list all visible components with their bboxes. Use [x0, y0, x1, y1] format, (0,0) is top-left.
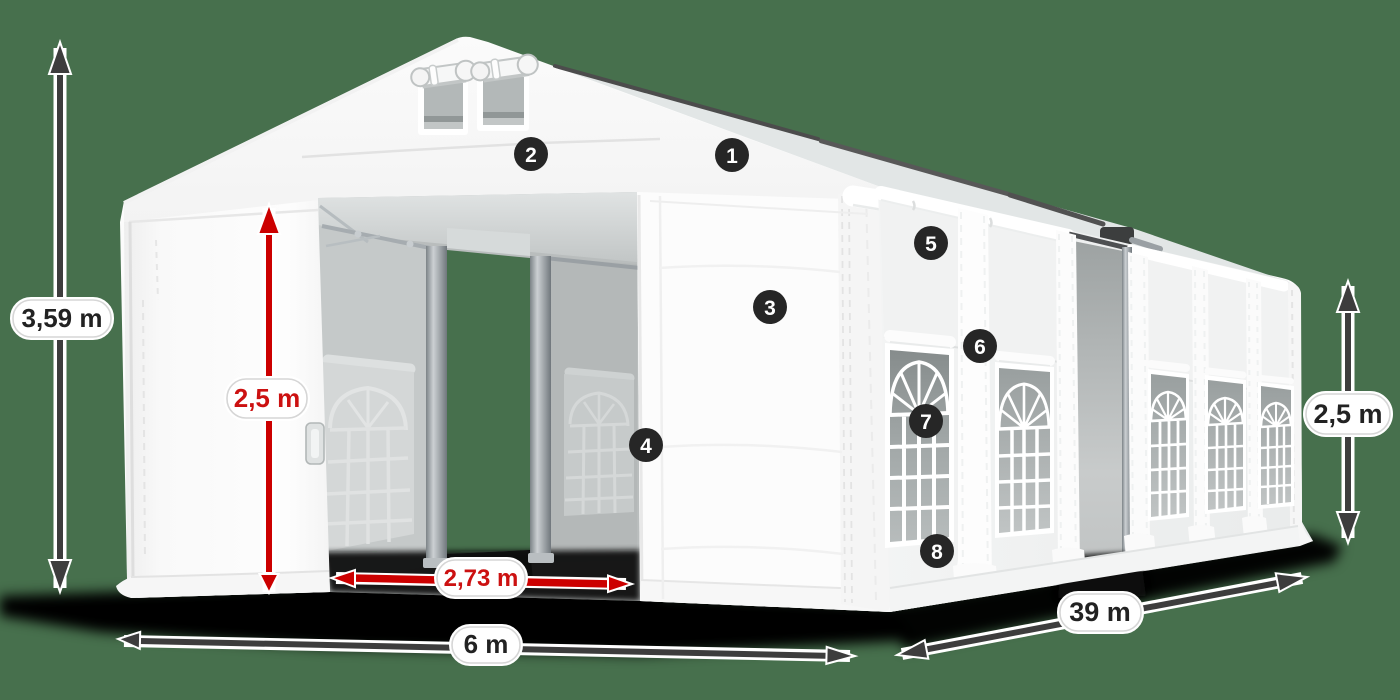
svg-text:2,5 m: 2,5 m [234, 383, 301, 413]
svg-text:3: 3 [764, 297, 776, 320]
svg-text:2,5 m: 2,5 m [1313, 399, 1382, 429]
svg-text:4: 4 [640, 435, 652, 458]
svg-text:5: 5 [925, 233, 937, 256]
svg-text:2,73 m: 2,73 m [444, 565, 519, 592]
svg-text:1: 1 [726, 145, 738, 168]
svg-text:2: 2 [525, 144, 537, 167]
svg-text:6 m: 6 m [464, 629, 509, 659]
svg-text:8: 8 [931, 541, 943, 564]
svg-text:3,59 m: 3,59 m [22, 303, 103, 333]
svg-text:39 m: 39 m [1069, 597, 1131, 627]
svg-text:7: 7 [920, 411, 932, 434]
svg-text:6: 6 [974, 336, 986, 359]
